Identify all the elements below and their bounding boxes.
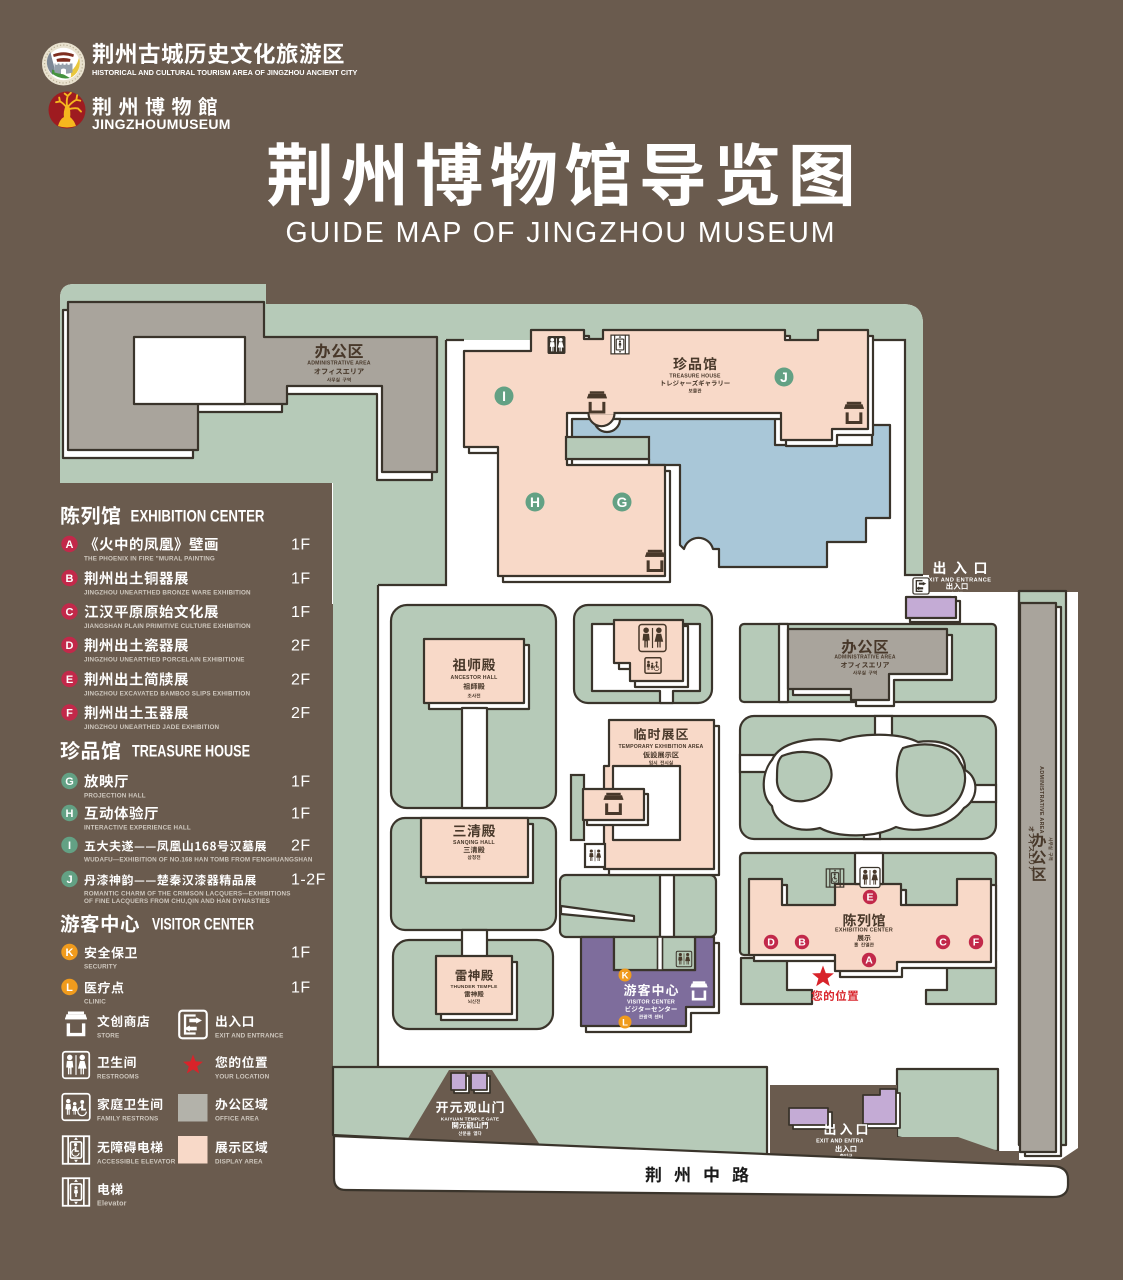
- svg-text:WUDAFU—EXHIBITION OF NO.168 HA: WUDAFU—EXHIBITION OF NO.168 HAN TOMB FRO…: [84, 857, 313, 864]
- svg-text:GUIDE MAP OF JINGZHOU MUSEUM: GUIDE MAP OF JINGZHOU MUSEUM: [285, 217, 836, 249]
- svg-text:JINGZHOU UNEARTHED PORCELAIN E: JINGZHOU UNEARTHED PORCELAIN EXHIBITIONE: [84, 657, 245, 664]
- svg-text:B: B: [798, 937, 806, 949]
- svg-text:L: L: [66, 982, 73, 994]
- svg-text:ADMINISTRATIVE AREA: ADMINISTRATIVE AREA: [307, 361, 371, 367]
- svg-text:1F: 1F: [291, 774, 311, 791]
- svg-text:G: G: [617, 495, 628, 510]
- svg-text:B: B: [66, 573, 74, 585]
- svg-text:2F: 2F: [291, 672, 311, 689]
- svg-text:HISTORICAL AND CULTURAL TOURIS: HISTORICAL AND CULTURAL TOURISM AREA OF …: [92, 68, 358, 77]
- svg-text:ADMINISTRATIVE AREA: ADMINISTRATIVE AREA: [1038, 766, 1044, 834]
- svg-text:L: L: [622, 1017, 628, 1028]
- svg-text:E: E: [866, 892, 873, 904]
- svg-text:KAIYUAN TEMPLE GATE: KAIYUAN TEMPLE GATE: [441, 1117, 499, 1122]
- svg-text:THUNDER TEMPLE: THUNDER TEMPLE: [450, 984, 498, 990]
- svg-text:1F: 1F: [291, 571, 311, 588]
- svg-text:TREASURE HOUSE: TREASURE HOUSE: [669, 374, 721, 380]
- svg-text:F: F: [66, 707, 73, 719]
- svg-text:1F: 1F: [291, 980, 311, 997]
- svg-text:2F: 2F: [291, 705, 311, 722]
- svg-text:EXHIBITION CENTER: EXHIBITION CENTER: [131, 507, 265, 526]
- svg-text:1F: 1F: [291, 806, 311, 823]
- svg-text:2F: 2F: [291, 838, 311, 855]
- svg-text:Elevator: Elevator: [97, 1199, 127, 1208]
- svg-text:I: I: [502, 389, 506, 404]
- svg-text:EXIT AND ENTRANCE: EXIT AND ENTRANCE: [924, 578, 991, 584]
- svg-text:1F: 1F: [291, 945, 311, 962]
- svg-text:J: J: [780, 370, 788, 385]
- svg-text:INTERACTIVE EXPERIENCE HALL: INTERACTIVE EXPERIENCE HALL: [84, 825, 191, 832]
- svg-text:1-2F: 1-2F: [291, 872, 326, 889]
- svg-text:A: A: [865, 955, 873, 967]
- svg-text:CLINIC: CLINIC: [84, 999, 106, 1006]
- svg-text:ANCESTOR HALL: ANCESTOR HALL: [451, 675, 499, 681]
- svg-text:JINGZHOU EXCAVATED BAMBOO SLIP: JINGZHOU EXCAVATED BAMBOO SLIPS EXHIBITI…: [84, 691, 250, 698]
- svg-text:JIANGSHAN PLAIN PRIMITIVE CULT: JIANGSHAN PLAIN PRIMITIVE CULTURE EXHIBI…: [84, 623, 251, 630]
- svg-text:H: H: [66, 808, 74, 820]
- svg-text:H: H: [530, 495, 540, 510]
- svg-text:OFFICE AREA: OFFICE AREA: [215, 1116, 259, 1123]
- svg-text:K: K: [66, 947, 74, 959]
- svg-text:RESTROOMS: RESTROOMS: [97, 1074, 139, 1081]
- svg-text:STORE: STORE: [97, 1033, 119, 1040]
- svg-text:1F: 1F: [291, 537, 311, 554]
- svg-text:EXHIBITION CENTER: EXHIBITION CENTER: [835, 928, 893, 934]
- svg-text:YOUR LOCATION: YOUR LOCATION: [215, 1074, 270, 1081]
- svg-text:DISPLAY AREA: DISPLAY AREA: [215, 1159, 263, 1166]
- svg-text:PROJECTION HALL: PROJECTION HALL: [84, 793, 146, 800]
- svg-text:TEMPORARY EXHIBITION AREA: TEMPORARY EXHIBITION AREA: [619, 744, 704, 750]
- svg-text:I: I: [68, 840, 71, 852]
- svg-text:TREASURE HOUSE: TREASURE HOUSE: [132, 742, 250, 761]
- svg-text:J: J: [66, 874, 72, 886]
- svg-text:OF FINE LACQUERS FROM CHU,QIN: OF FINE LACQUERS FROM CHU,QIN AND HAN DY…: [84, 898, 270, 905]
- svg-text:ACCESSIBLE ELEVATOR: ACCESSIBLE ELEVATOR: [97, 1159, 176, 1166]
- svg-text:F: F: [973, 937, 980, 949]
- svg-text:1F: 1F: [291, 604, 311, 621]
- svg-text:JINGZHOU UNEARTHED BRONZE WARE: JINGZHOU UNEARTHED BRONZE WARE EXHIBITIO…: [84, 590, 251, 597]
- svg-text:SANQING HALL: SANQING HALL: [453, 840, 496, 846]
- svg-text:EXIT AND ENTRANCE: EXIT AND ENTRANCE: [215, 1033, 283, 1040]
- svg-text:A: A: [66, 539, 74, 551]
- svg-text:SECURITY: SECURITY: [84, 964, 118, 971]
- svg-text:ADMINISTRATIVE AREA: ADMINISTRATIVE AREA: [834, 655, 895, 661]
- svg-text:VISITOR CENTER: VISITOR CENTER: [627, 1000, 675, 1006]
- svg-text:2F: 2F: [291, 638, 311, 655]
- svg-text:D: D: [767, 937, 775, 949]
- svg-text:D: D: [66, 640, 74, 652]
- svg-text:C: C: [66, 606, 74, 618]
- svg-text:FAMILY RESTRONS: FAMILY RESTRONS: [97, 1116, 158, 1123]
- svg-text:JINGZHOUMUSEUM: JINGZHOUMUSEUM: [92, 116, 231, 132]
- svg-text:JINGZHOU UNEARTHED JADE EXHIBI: JINGZHOU UNEARTHED JADE EXHIBITION: [84, 724, 220, 731]
- svg-text:ROMANTIC CHARM OF THE CRIMSON: ROMANTIC CHARM OF THE CRIMSON LACQUERS—E…: [84, 891, 291, 898]
- svg-text:G: G: [65, 776, 74, 788]
- svg-text:K: K: [622, 970, 629, 981]
- svg-text:THE PHOENIX IN FIRE ”MURAL PAI: THE PHOENIX IN FIRE ”MURAL PAINTING: [84, 556, 215, 563]
- svg-text:C: C: [939, 937, 947, 949]
- svg-text:E: E: [66, 674, 73, 686]
- svg-text:VISITOR CENTER: VISITOR CENTER: [152, 915, 254, 934]
